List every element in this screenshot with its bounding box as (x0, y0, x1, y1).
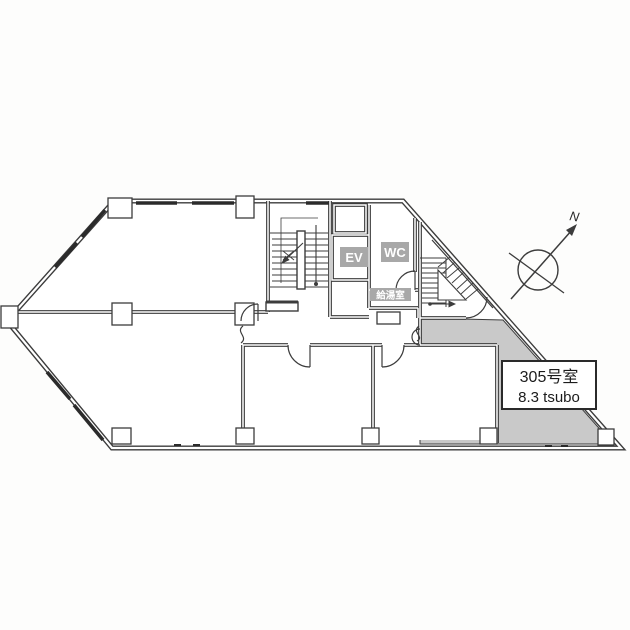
unit-room-number: 305号室 (520, 368, 579, 386)
compass: N (509, 208, 581, 299)
elevator-label: EV (340, 247, 368, 267)
toilet-label: WC (381, 242, 409, 262)
unit-info-box: 305号室 8.3 tsubo (502, 361, 596, 409)
toilet-label-text: WC (384, 245, 406, 260)
room-lower-right (373, 345, 497, 440)
floor-plan-page: EV WC 給湯室 N 305号室 8.3 tsubo (0, 0, 630, 630)
elevator-label-text: EV (345, 250, 363, 265)
floor-plan-canvas: EV WC 給湯室 N 305号室 8.3 tsubo (0, 0, 630, 630)
kitchenette-label: 給湯室 (370, 288, 411, 302)
compass-north-text: N (568, 208, 580, 225)
unit-area: 8.3 tsubo (518, 389, 580, 406)
kitchenette-label-text: 給湯室 (376, 290, 405, 302)
sink-counter (377, 312, 400, 324)
